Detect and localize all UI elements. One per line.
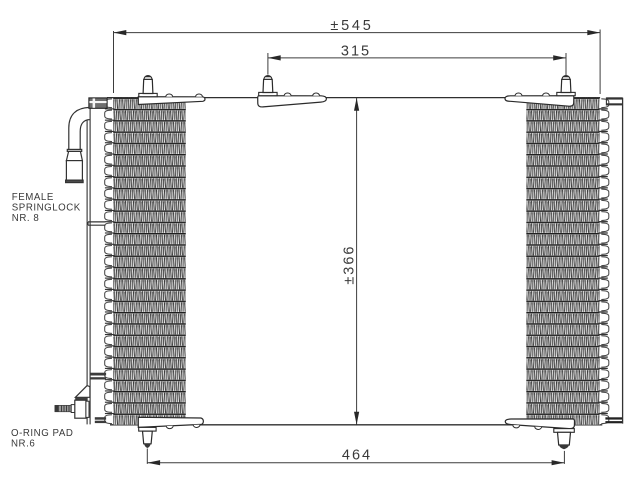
svg-text:315: 315	[341, 43, 371, 59]
svg-text:464: 464	[342, 448, 372, 464]
svg-text:±545: ±545	[330, 18, 373, 34]
svg-text:SPRINGLOCK: SPRINGLOCK	[12, 202, 81, 213]
svg-text:±366: ±366	[341, 245, 357, 285]
svg-text:FEMALE: FEMALE	[12, 192, 54, 203]
svg-text:NR. 8: NR. 8	[12, 213, 40, 224]
svg-text:NR.6: NR.6	[11, 439, 35, 450]
